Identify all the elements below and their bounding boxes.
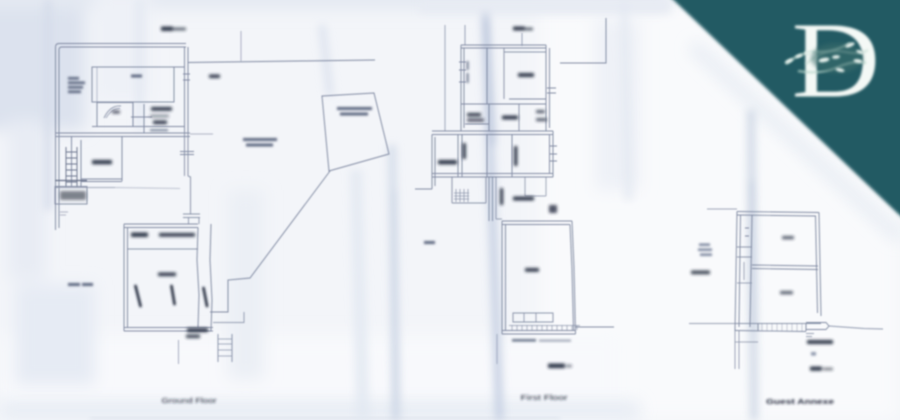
svg-text:First Floor: First Floor: [521, 395, 569, 402]
svg-text:Guest Annexe: Guest Annexe: [766, 397, 834, 406]
svg-text:Ground Floor: Ground Floor: [162, 398, 218, 405]
